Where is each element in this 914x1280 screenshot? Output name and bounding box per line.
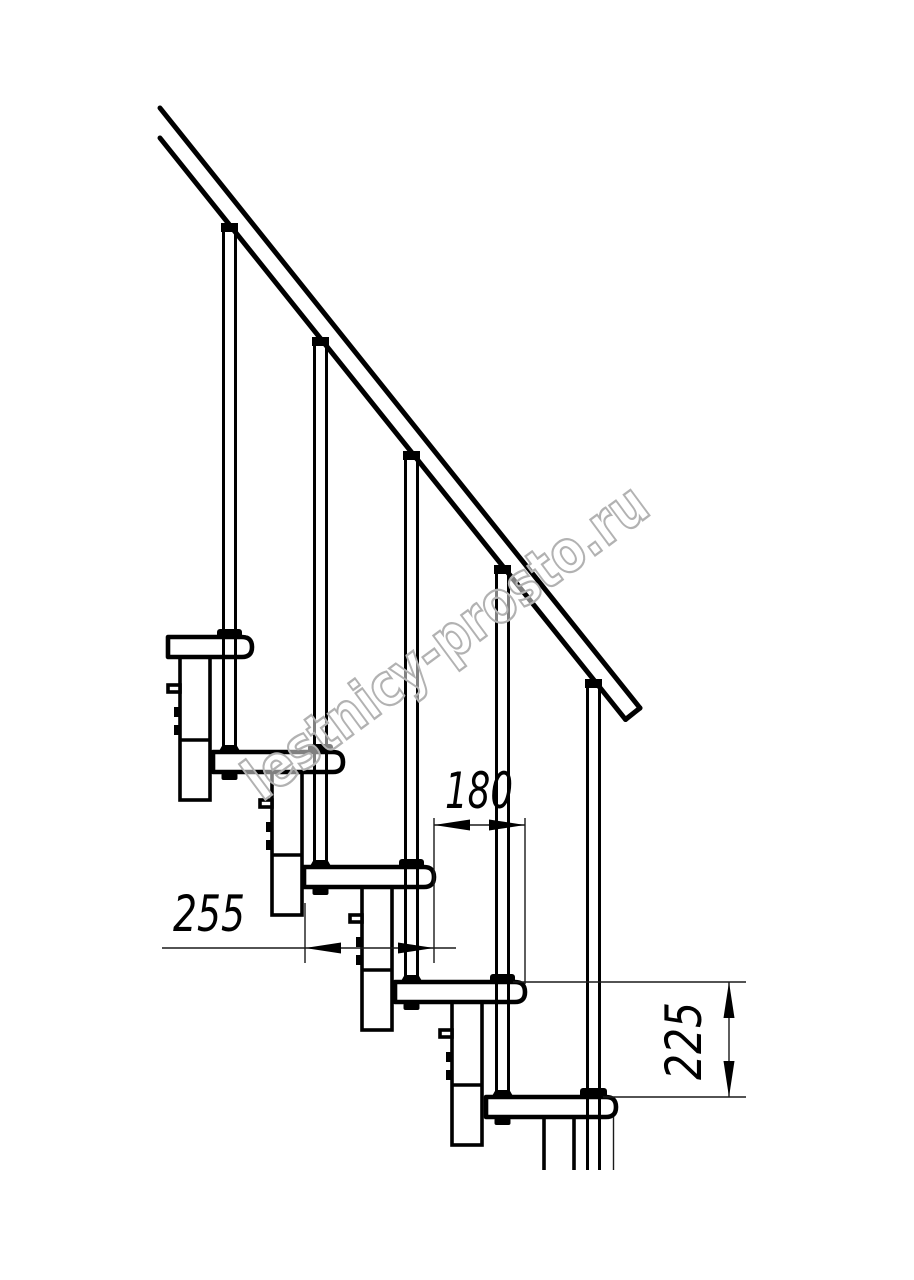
baluster-3 bbox=[399, 451, 424, 1010]
baluster-collar bbox=[217, 629, 242, 638]
support-module-3 bbox=[350, 887, 392, 1030]
baluster-collar bbox=[399, 859, 424, 868]
baluster-nut bbox=[495, 1118, 511, 1125]
dimension-tread-255: 255 bbox=[162, 885, 456, 963]
baluster-1 bbox=[217, 223, 242, 780]
tread-5 bbox=[486, 1097, 616, 1117]
baluster-nut bbox=[313, 888, 329, 895]
handrail bbox=[160, 108, 640, 720]
support-module-5 bbox=[544, 1117, 574, 1170]
baluster-foot bbox=[310, 860, 332, 867]
dimension-value-180: 180 bbox=[445, 762, 513, 820]
baluster-nut bbox=[222, 773, 238, 780]
dimension-value-225: 225 bbox=[655, 1002, 713, 1080]
arrowhead-down bbox=[724, 1061, 735, 1097]
baluster-foot bbox=[219, 745, 241, 752]
support-module-1 bbox=[168, 657, 210, 800]
arrowhead-up bbox=[724, 982, 735, 1018]
dimension-value-255: 255 bbox=[173, 885, 245, 943]
baluster-nut bbox=[404, 1003, 420, 1010]
handrail-end-cap bbox=[626, 708, 641, 720]
handrail-top-edge bbox=[160, 108, 640, 708]
baluster-collar bbox=[490, 974, 515, 983]
baluster-foot bbox=[401, 975, 423, 982]
module-bolt bbox=[266, 822, 272, 832]
dimension-rise-225: 225 bbox=[513, 982, 746, 1097]
module-bolt bbox=[446, 1070, 452, 1080]
arrowhead-left bbox=[305, 943, 341, 954]
baluster-foot bbox=[492, 1090, 514, 1097]
drawing-canvas: 180 255 225 lestnicy-prosto.ru bbox=[0, 0, 914, 1280]
module-bolt bbox=[356, 937, 362, 947]
module-tab bbox=[350, 915, 362, 922]
module-bolt bbox=[446, 1052, 452, 1062]
tread-1 bbox=[168, 637, 252, 657]
module-bolt bbox=[174, 707, 180, 717]
baluster-2 bbox=[308, 337, 333, 895]
module-bolt bbox=[174, 725, 180, 735]
tread-3 bbox=[304, 867, 434, 887]
arrowhead-left bbox=[434, 820, 470, 831]
support-module-4 bbox=[440, 1002, 482, 1145]
module-tab bbox=[440, 1030, 452, 1037]
dimension-run-180: 180 bbox=[434, 762, 525, 984]
module-bolt bbox=[266, 840, 272, 850]
module-bolt bbox=[356, 955, 362, 965]
tread-4 bbox=[395, 982, 525, 1002]
staircase-drawing: 180 255 225 lestnicy-prosto.ru bbox=[0, 0, 914, 1280]
module-tab bbox=[168, 685, 180, 692]
baluster-collar bbox=[580, 1088, 607, 1098]
baluster-4 bbox=[490, 565, 515, 1125]
